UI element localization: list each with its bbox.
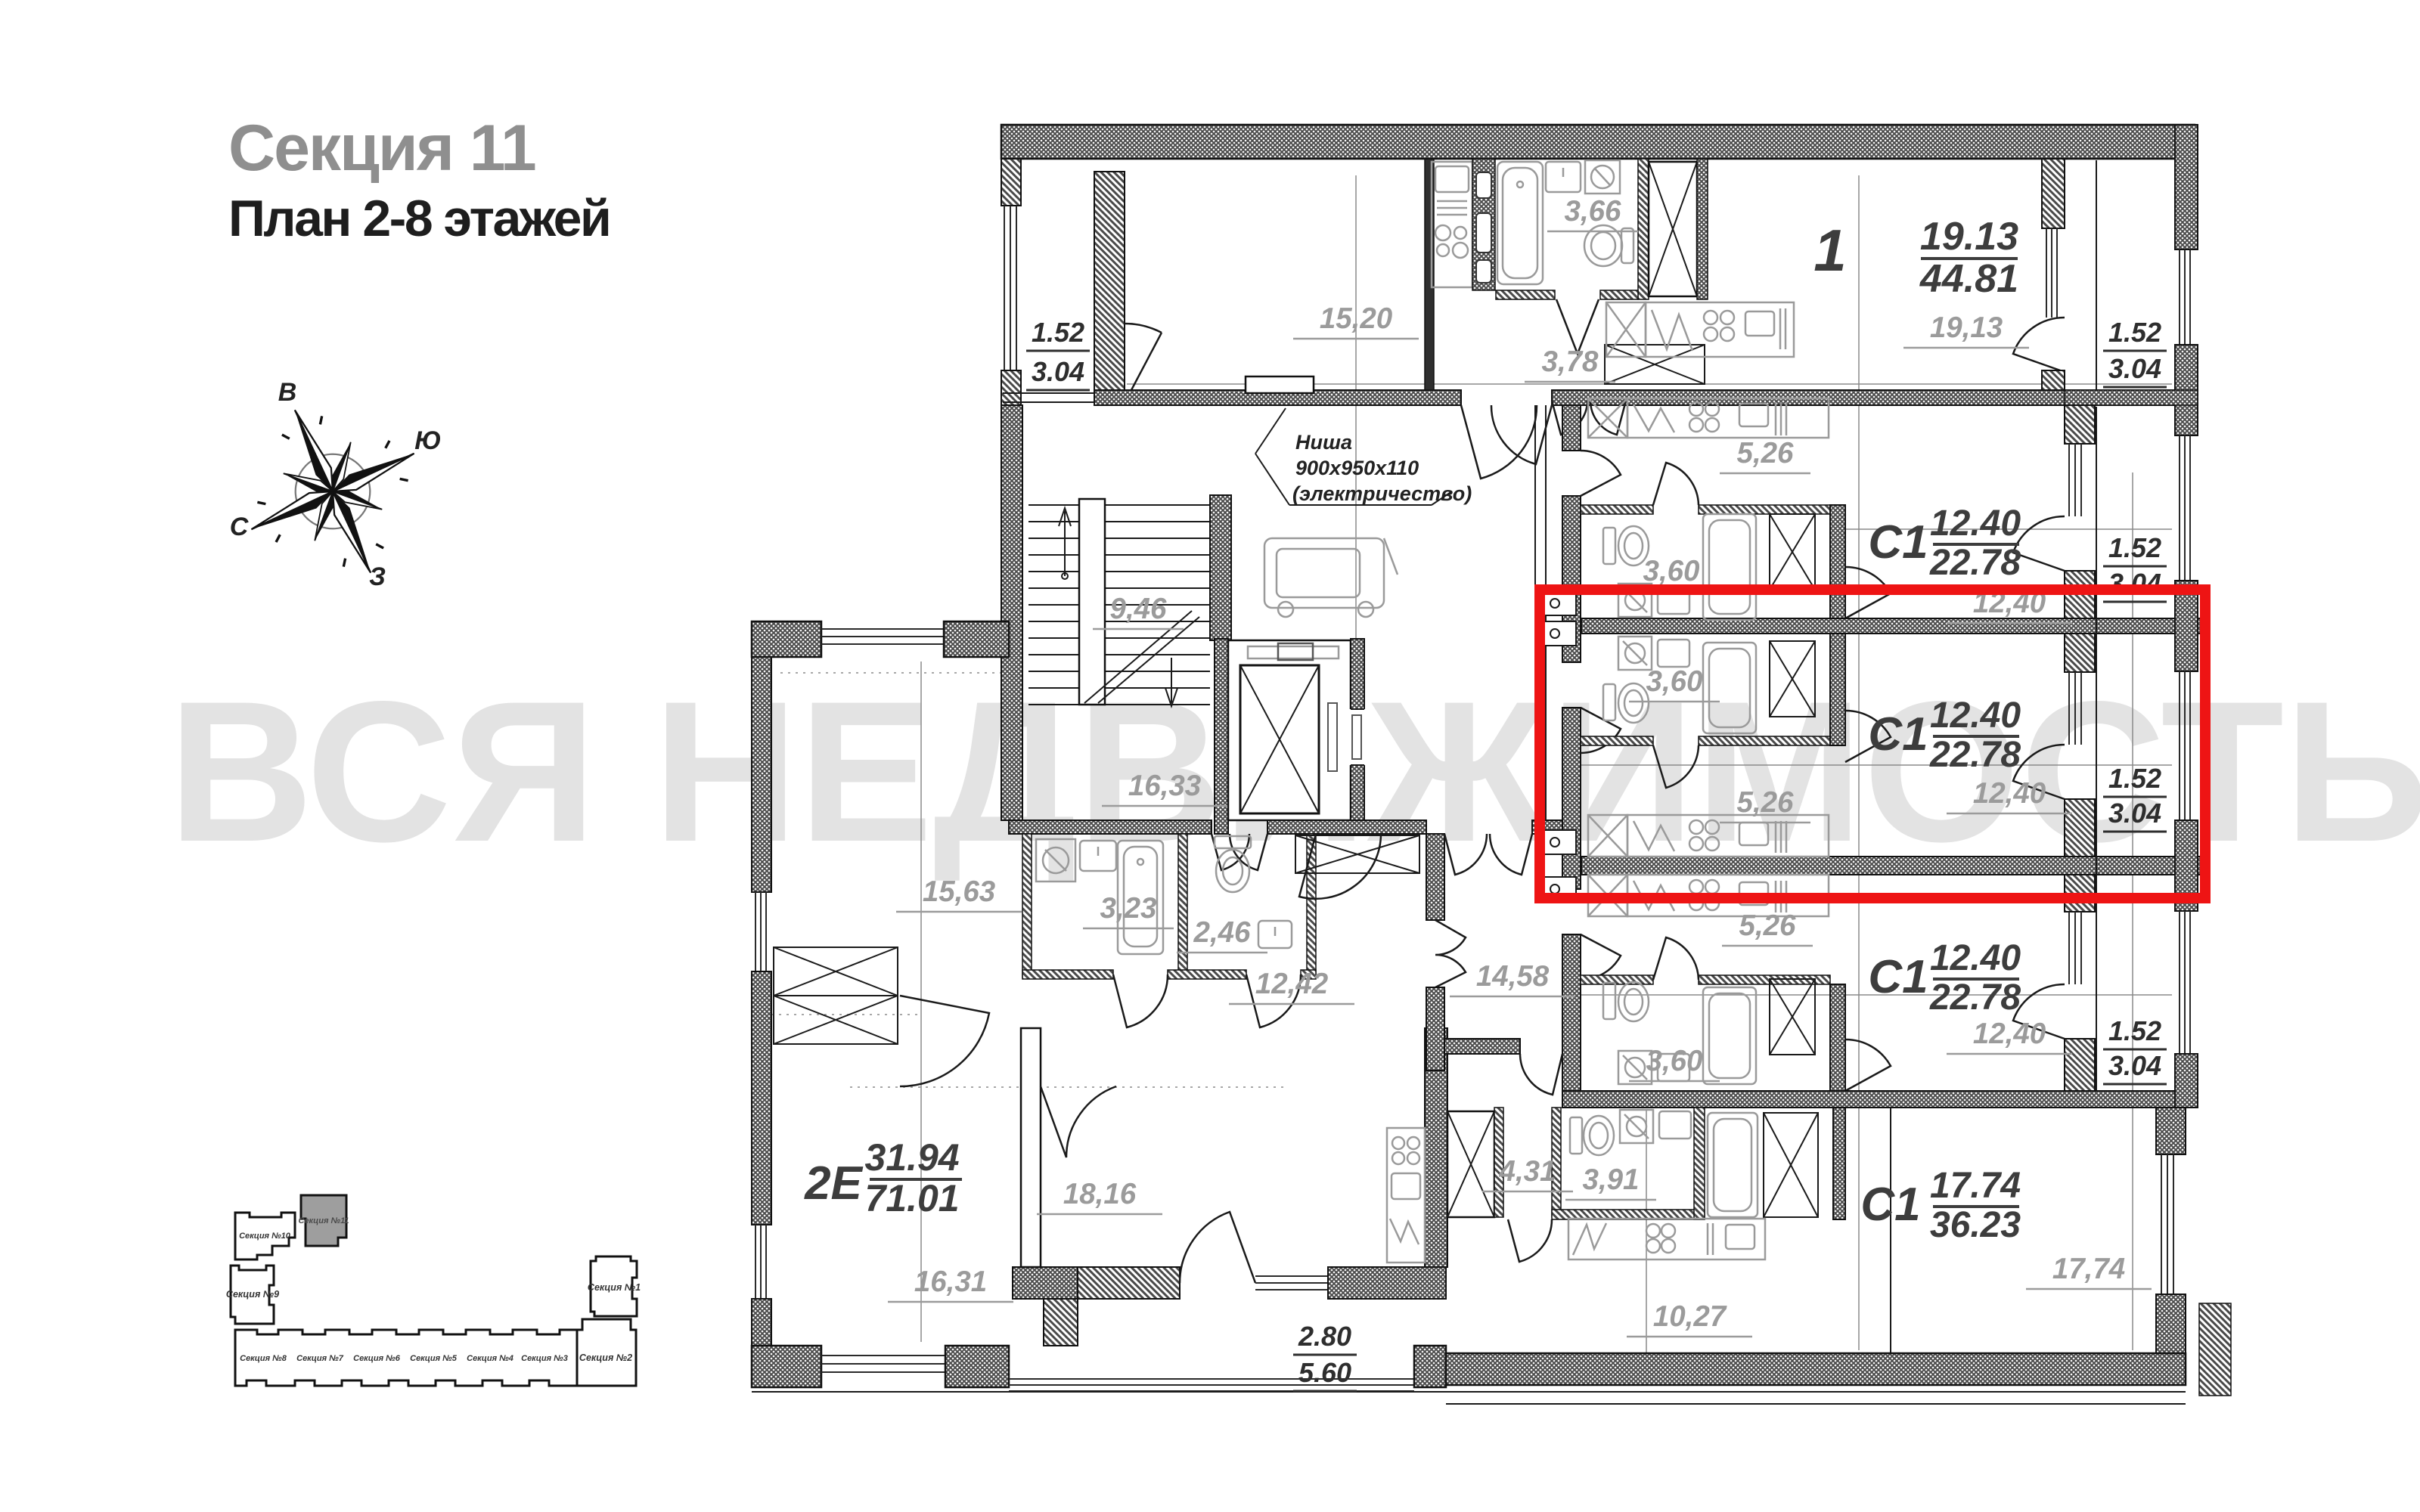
svg-text:Секция №11: Секция №11 bbox=[298, 1216, 349, 1225]
svg-text:18,16: 18,16 bbox=[1063, 1178, 1137, 1210]
svg-text:1.52: 1.52 bbox=[2108, 532, 2161, 563]
svg-text:Секция №5: Секция №5 bbox=[410, 1354, 458, 1363]
svg-text:1: 1 bbox=[1813, 217, 1846, 283]
svg-text:12,40: 12,40 bbox=[1973, 777, 2046, 810]
svg-text:Ниша: Ниша bbox=[1295, 431, 1352, 454]
svg-text:36.23: 36.23 bbox=[1930, 1205, 2021, 1245]
svg-text:Секция №3: Секция №3 bbox=[521, 1354, 568, 1363]
svg-text:2Е: 2Е bbox=[804, 1157, 863, 1210]
svg-text:15,63: 15,63 bbox=[923, 875, 995, 908]
svg-text:Секция №9: Секция №9 bbox=[226, 1289, 279, 1300]
svg-text:3.04: 3.04 bbox=[2108, 798, 2161, 829]
svg-text:10,27: 10,27 bbox=[1653, 1300, 1727, 1333]
svg-text:22.78: 22.78 bbox=[1929, 735, 2021, 775]
svg-text:3,78: 3,78 bbox=[1542, 345, 1599, 378]
svg-text:16,31: 16,31 bbox=[914, 1266, 987, 1298]
svg-text:Секция 11: Секция 11 bbox=[228, 112, 535, 184]
svg-text:16,33: 16,33 bbox=[1128, 770, 1201, 802]
svg-text:3.04: 3.04 bbox=[2108, 353, 2161, 384]
svg-text:С1: С1 bbox=[1868, 708, 1928, 761]
svg-text:12.40: 12.40 bbox=[1930, 503, 2021, 544]
svg-text:44.81: 44.81 bbox=[1919, 257, 2018, 301]
svg-text:3,60: 3,60 bbox=[1643, 555, 1701, 587]
svg-text:С1: С1 bbox=[1868, 951, 1928, 1003]
svg-text:5,26: 5,26 bbox=[1737, 786, 1795, 819]
svg-text:С1: С1 bbox=[1868, 516, 1928, 569]
svg-text:1.52: 1.52 bbox=[2108, 763, 2161, 794]
svg-text:31.94: 31.94 bbox=[864, 1136, 959, 1179]
svg-text:Секция №7: Секция №7 bbox=[296, 1354, 344, 1363]
svg-text:15,20: 15,20 bbox=[1320, 302, 1393, 335]
svg-text:12,42: 12,42 bbox=[1255, 968, 1329, 1000]
svg-text:1.52: 1.52 bbox=[2108, 1015, 2161, 1046]
svg-text:Секция №10: Секция №10 bbox=[239, 1232, 291, 1241]
svg-text:71.01: 71.01 bbox=[864, 1177, 959, 1219]
svg-text:Секция №8: Секция №8 bbox=[240, 1354, 287, 1363]
svg-text:17,74: 17,74 bbox=[2052, 1253, 2125, 1285]
svg-text:Ю: Ю bbox=[414, 426, 441, 455]
svg-text:(электричество): (электричество) bbox=[1292, 482, 1472, 505]
svg-text:Секция №2: Секция №2 bbox=[579, 1352, 632, 1363]
svg-text:19,13: 19,13 bbox=[1930, 311, 2003, 344]
svg-text:2,46: 2,46 bbox=[1193, 916, 1252, 949]
svg-text:19.13: 19.13 bbox=[1920, 215, 2018, 259]
svg-text:3,60: 3,60 bbox=[1646, 1045, 1704, 1077]
svg-text:14,58: 14,58 bbox=[1476, 960, 1550, 993]
svg-text:3.04: 3.04 bbox=[1032, 356, 1084, 387]
svg-text:Секция №6: Секция №6 bbox=[353, 1354, 401, 1363]
svg-text:2.80: 2.80 bbox=[1298, 1321, 1351, 1352]
svg-text:17.74: 17.74 bbox=[1930, 1166, 2021, 1206]
svg-text:Секция №1: Секция №1 bbox=[588, 1282, 641, 1293]
svg-text:12,40: 12,40 bbox=[1973, 1018, 2046, 1050]
svg-text:3,60: 3,60 bbox=[1646, 665, 1704, 698]
svg-text:3,91: 3,91 bbox=[1583, 1163, 1640, 1196]
svg-text:З: З bbox=[369, 562, 386, 591]
svg-text:5.60: 5.60 bbox=[1298, 1357, 1351, 1388]
svg-text:3,23: 3,23 bbox=[1100, 892, 1157, 925]
svg-text:5,26: 5,26 bbox=[1739, 909, 1797, 942]
svg-text:4,31: 4,31 bbox=[1499, 1155, 1556, 1188]
svg-text:5,26: 5,26 bbox=[1737, 437, 1795, 469]
svg-text:12.40: 12.40 bbox=[1930, 696, 2021, 736]
svg-text:22.78: 22.78 bbox=[1929, 543, 2021, 583]
svg-text:Секция №4: Секция №4 bbox=[467, 1354, 513, 1363]
svg-text:1.52: 1.52 bbox=[1032, 317, 1084, 348]
svg-text:22.78: 22.78 bbox=[1929, 978, 2021, 1018]
svg-text:В: В bbox=[278, 378, 297, 407]
svg-text:С: С bbox=[230, 513, 249, 541]
svg-text:9,46: 9,46 bbox=[1110, 593, 1168, 625]
svg-text:3,66: 3,66 bbox=[1565, 195, 1622, 228]
svg-text:3.04: 3.04 bbox=[2108, 1050, 2161, 1081]
svg-text:900х950х110: 900х950х110 bbox=[1295, 457, 1419, 479]
svg-text:12.40: 12.40 bbox=[1930, 938, 2021, 978]
svg-text:1.52: 1.52 bbox=[2108, 317, 2161, 348]
svg-text:План 2-8 этажей: План 2-8 этажей bbox=[228, 190, 610, 247]
svg-text:С1: С1 bbox=[1860, 1179, 1920, 1231]
